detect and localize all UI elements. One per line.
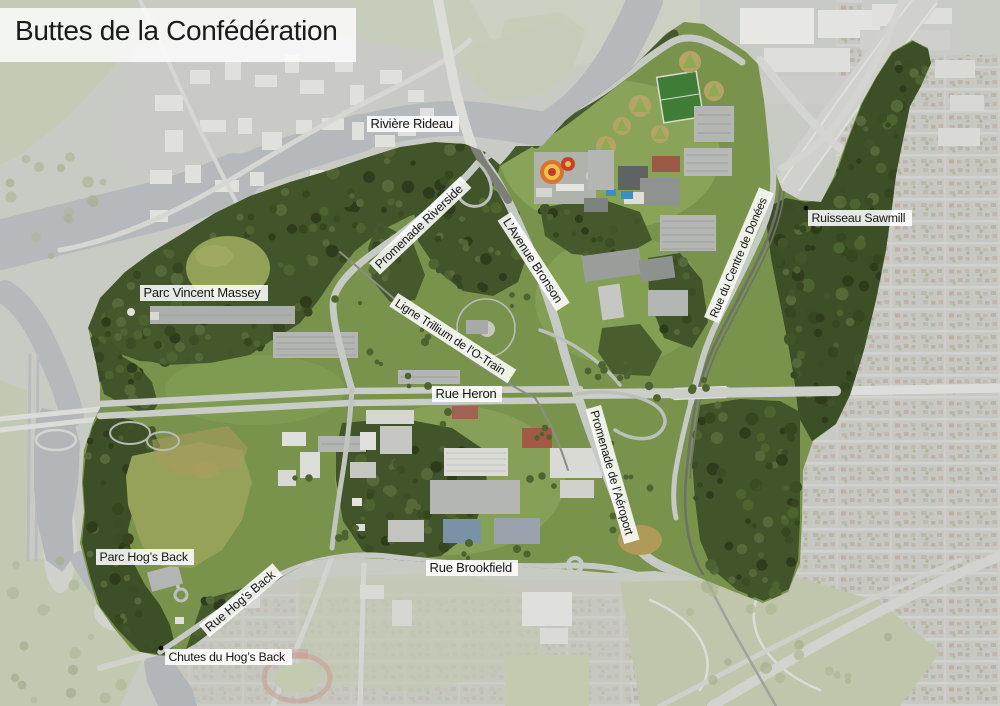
svg-text:Ruisseau Sawmill: Ruisseau Sawmill	[812, 211, 906, 225]
svg-text:Chutes du Hog’s Back: Chutes du Hog’s Back	[169, 650, 286, 664]
svg-text:Parc Hog’s Back: Parc Hog’s Back	[100, 550, 189, 564]
svg-text:Parc Vincent Massey: Parc Vincent Massey	[144, 285, 262, 300]
svg-text:Buttes de la Confédération: Buttes de la Confédération	[15, 15, 337, 46]
svg-text:Rue Heron: Rue Heron	[436, 386, 497, 401]
svg-text:Rue Brookfield: Rue Brookfield	[430, 560, 512, 575]
svg-text:Rivière Rideau: Rivière Rideau	[371, 116, 453, 131]
